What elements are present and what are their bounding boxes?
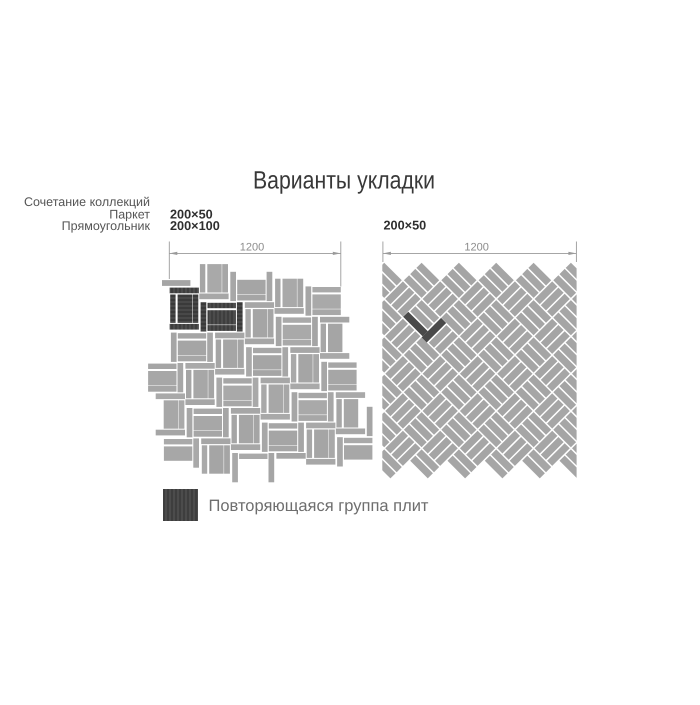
svg-text:1200: 1200	[240, 242, 264, 254]
svg-text:200×100: 200×100	[170, 219, 220, 233]
svg-text:Варианты укладки: Варианты укладки	[253, 167, 435, 195]
svg-text:Прямоугольник: Прямоугольник	[62, 219, 151, 233]
svg-text:1200: 1200	[464, 242, 488, 254]
svg-text:Повторяющаяся группа плит: Повторяющаяся группа плит	[209, 497, 429, 515]
svg-text:200×50: 200×50	[384, 218, 427, 232]
svg-text:Сочетание коллекций: Сочетание коллекций	[24, 195, 150, 209]
